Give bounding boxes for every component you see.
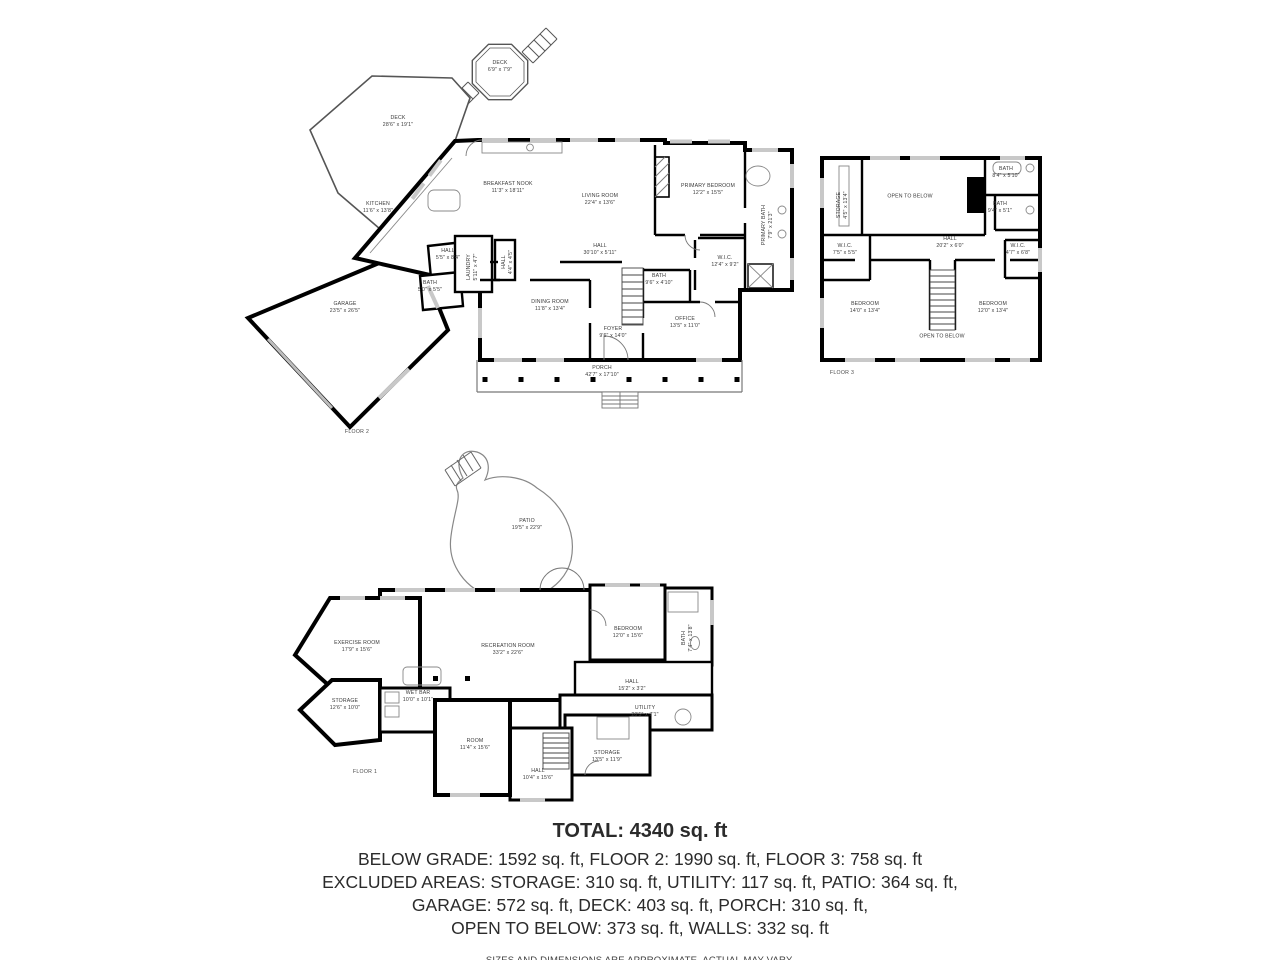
floorplan-page: DECK6'9" x 7'9" DECK28'6" x 19'1" KITCHE… (0, 0, 1280, 960)
room-label-wic-f3-left: W.I.C.7'5" x 5'5" (833, 243, 857, 257)
room-label-garage: GARAGE23'5" x 26'5" (330, 301, 360, 315)
room-label-utility: UTILITY20'5" x 7'1" (631, 705, 658, 719)
excluded-areas-text-3: OPEN TO BELOW: 373 sq. ft, WALLS: 332 sq… (0, 918, 1280, 939)
room-label-foyer: FOYER9'6" x 14'0" (599, 326, 626, 340)
area-summary: TOTAL: 4340 sq. ft BELOW GRADE: 1592 sq.… (0, 820, 1280, 960)
floor1-tag: FLOOR 1 (353, 769, 377, 775)
floor1-stairs (543, 733, 569, 769)
room-label-breakfast-nook: BREAKFAST NOOK11'3" x 18'11" (483, 181, 532, 195)
room-label-office: OFFICE13'5" x 11'0" (670, 316, 700, 330)
garage-walls (248, 248, 448, 427)
room-label-kitchen: KITCHEN11'6" x 13'8" (363, 201, 393, 215)
floor2-tag: FLOOR 2 (345, 429, 369, 435)
room-label-hall-main: HALL30'10" x 5'11" (583, 243, 616, 257)
room-label-bath-center: BATH9'6" x 4'10" (645, 273, 672, 287)
room-label-deck-small: DECK6'9" x 7'9" (488, 60, 512, 74)
excluded-areas-text-2: GARAGE: 572 sq. ft, DECK: 403 sq. ft, PO… (0, 895, 1280, 916)
room-label-patio: PATIO19'5" x 22'9" (512, 518, 542, 532)
floor1-walls (295, 585, 712, 800)
floor3-tag: FLOOR 3 (830, 370, 854, 376)
room-label-storage-f3: STORAGE4'5" x 13'4" (836, 191, 850, 218)
floor3-stairs (930, 270, 955, 330)
floor2-plan-drawing (230, 18, 810, 442)
floor-areas-text: BELOW GRADE: 1592 sq. ft, FLOOR 2: 1990 … (0, 849, 1280, 870)
room-label-recreation-room: RECREATION ROOM33'2" x 22'6" (481, 643, 534, 657)
room-label-porch: PORCH42'7" x 17'10" (585, 365, 618, 379)
floor2-stairs (622, 268, 643, 325)
floor1-plan-drawing (285, 440, 725, 810)
room-label-open-to-below: OPEN TO BELOW (887, 193, 932, 200)
room-label-primary-bedroom: PRIMARY BEDROOM12'2" x 15'5" (681, 183, 735, 197)
excluded-areas-text-1: EXCLUDED AREAS: STORAGE: 310 sq. ft, UTI… (0, 872, 1280, 893)
floor3-chimney (967, 177, 985, 213)
room-label-bedroom-f3-right: BEDROOM12'0" x 13'4" (978, 301, 1008, 315)
room-label-hall-west: HALL5'5" x 8'4" (436, 248, 460, 262)
room-label-wet-bar: WET BAR10'0" x 10'1" (403, 690, 433, 704)
room-label-hall-small: HALL4'4" x 4'5" (501, 250, 515, 274)
room-label-bedroom-f3-left: BEDROOM14'0" x 13'4" (850, 301, 880, 315)
room-label-laundry: LAUNDRY5'11" x 4'7" (466, 254, 480, 281)
disclaimer-text: SIZES AND DIMENSIONS ARE APPROXIMATE, AC… (0, 955, 1280, 960)
room-label-storage-f1-left: STORAGE12'6" x 10'0" (330, 698, 360, 712)
room-label-hall-f1: HALL15'2" x 3'2" (618, 679, 645, 693)
room-label-hall-f1-lower: HALL10'4" x 15'6" (523, 768, 553, 782)
room-label-exercise-room: EXERCISE ROOM17'9" x 15'6" (334, 640, 380, 654)
room-label-open-to-below-small: OPEN TO BELOW (919, 333, 964, 340)
room-label-wic-f3-right: W.I.C.4'7" x 6'8" (1006, 243, 1030, 257)
room-label-primary-bath: PRIMARY BATH7'9" x 21'3" (761, 205, 775, 245)
room-label-bedroom-f1: BEDROOM12'0" x 15'6" (613, 626, 643, 640)
room-label-storage-f1-right: STORAGE13'5" x 11'9" (592, 750, 622, 764)
deck-stairs-ne (522, 28, 557, 63)
floor3-plan-drawing (815, 148, 1050, 388)
room-label-room: ROOM11'4" x 15'6" (460, 738, 490, 752)
room-label-living-room: LIVING ROOM22'4" x 13'6" (582, 193, 618, 207)
room-label-deck-large: DECK28'6" x 19'1" (383, 115, 413, 129)
room-label-wic-primary: W.I.C.12'4" x 9'2" (711, 255, 738, 269)
porch-steps (602, 392, 638, 408)
room-label-bath-f3-top: BATH8'4" x 5'10" (992, 166, 1019, 180)
room-label-bath-west: BATH5'0" x 5'5" (418, 280, 442, 294)
room-label-dining-room: DINING ROOM11'8" x 13'4" (531, 299, 568, 313)
total-area-text: TOTAL: 4340 sq. ft (0, 820, 1280, 843)
room-label-bath-f1: BATH7'4" x 13'8" (681, 624, 695, 651)
room-label-hall-f3: HALL20'2" x 6'0" (936, 236, 963, 250)
room-label-bath-f3-mid: BATH9'4" x 5'1" (988, 201, 1012, 215)
